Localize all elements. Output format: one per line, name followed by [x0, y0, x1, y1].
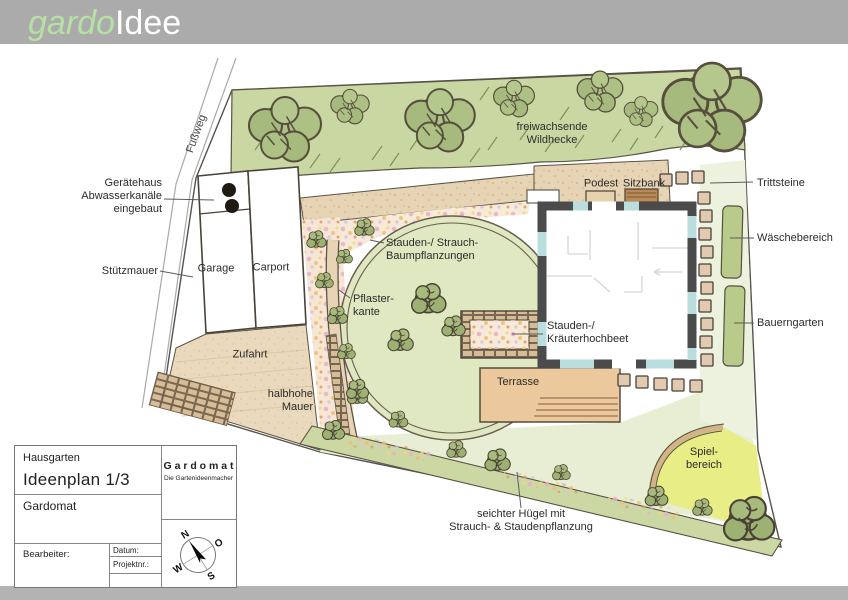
- plan-sheet: { "logo": { "brand_green": "gardo", "bra…: [0, 0, 848, 600]
- label-stauden-strauch: Stauden-/ Strauch- Baumpflanzungen: [386, 237, 478, 263]
- label-spielbereich: Spiel- bereich: [686, 446, 722, 472]
- client-name: Gardomat: [23, 499, 76, 513]
- label-wildhecke: freiwachsende Wildhecke: [517, 121, 588, 147]
- table: [527, 190, 559, 203]
- company-name: G a r d o m a t: [161, 460, 236, 472]
- label-halbhohe-mauer: halbhohe Mauer: [230, 388, 313, 414]
- label-carport: Carport: [253, 261, 290, 274]
- label-waeschebereich: Wäschebereich: [757, 232, 833, 245]
- compass-rose: N O S W: [161, 524, 236, 586]
- bearbeiter-label: Bearbeiter:: [23, 549, 69, 560]
- bench: [625, 189, 658, 202]
- footer-bar: [0, 586, 848, 600]
- label-terrasse: Terrasse: [497, 376, 539, 389]
- label-kraeuterhochbeet: Stauden-/ Kräuterhochbeet: [547, 320, 628, 346]
- plan-title: Ideenplan 1/3: [23, 470, 130, 490]
- projektnr-label: Projektnr.:: [113, 560, 149, 569]
- title-block: Hausgarten Ideenplan 1/3 Gardomat Bearbe…: [14, 445, 237, 588]
- project-type: Hausgarten: [23, 452, 80, 464]
- brand-logo: gardoIdee: [28, 0, 181, 44]
- label-trittsteine: Trittsteine: [757, 177, 805, 190]
- logo-gardo: gardo: [28, 4, 115, 42]
- label-huegel: seichter Hügel mit Strauch- & Staudenpfl…: [449, 508, 593, 534]
- label-garage: Garage: [198, 262, 235, 275]
- label-pflasterkante: Pflaster- kante: [353, 293, 394, 319]
- label-geraetehaus: Gerätehaus Abwasserkanäle eingebaut: [40, 177, 162, 217]
- logo-idee: Idee: [115, 4, 181, 42]
- datum-label: Datum:: [113, 546, 139, 555]
- farm-garden-bed: [723, 286, 745, 366]
- compass-s: S: [206, 570, 218, 583]
- label-sitzbank: Sitzbank: [623, 177, 665, 190]
- company-tagline: Die Gartenideenmacher: [161, 475, 236, 482]
- label-podest: Podest: [584, 177, 618, 190]
- label-zufahrt: Zufahrt: [233, 348, 268, 361]
- garage-carport: [198, 167, 306, 333]
- compass-e: O: [213, 537, 226, 551]
- laundry-area-bed: [721, 206, 743, 278]
- label-stuetzmauer: Stützmauer: [40, 265, 158, 278]
- header-bar: gardoIdee: [0, 0, 848, 44]
- sewer-manhole: [225, 199, 239, 213]
- sewer-manhole: [222, 183, 236, 197]
- label-bauerngarten: Bauerngarten: [757, 317, 824, 330]
